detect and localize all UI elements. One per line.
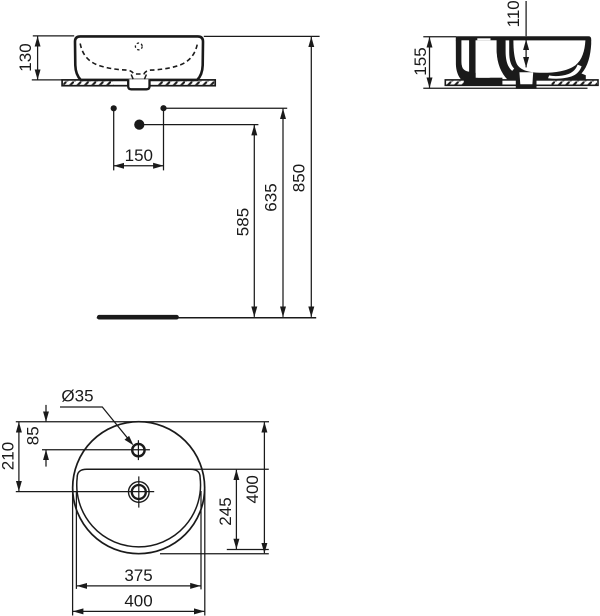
svg-text:635: 635: [262, 183, 281, 211]
svg-text:155: 155: [411, 47, 430, 75]
svg-text:110: 110: [504, 0, 523, 27]
svg-text:400: 400: [124, 592, 152, 611]
svg-text:210: 210: [0, 442, 18, 470]
svg-text:130: 130: [16, 43, 35, 71]
svg-text:850: 850: [290, 164, 309, 192]
svg-text:Ø35: Ø35: [61, 387, 93, 406]
svg-text:85: 85: [24, 426, 43, 445]
svg-text:400: 400: [243, 475, 262, 503]
svg-text:375: 375: [124, 566, 152, 585]
svg-text:150: 150: [125, 146, 153, 165]
svg-text:585: 585: [234, 208, 253, 236]
svg-text:245: 245: [216, 497, 235, 525]
